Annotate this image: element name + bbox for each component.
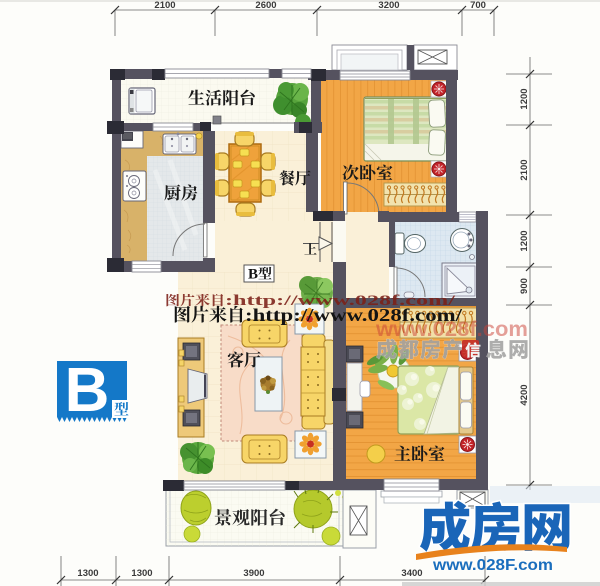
svg-text:1300: 1300 [131, 568, 152, 579]
svg-text:3900: 3900 [243, 568, 264, 579]
svg-text:2600: 2600 [255, 0, 276, 11]
svg-text:2100: 2100 [154, 0, 175, 11]
svg-text:4200: 4200 [519, 384, 530, 405]
svg-text:1300: 1300 [77, 568, 98, 579]
svg-text:1200: 1200 [519, 230, 530, 251]
svg-text:B: B [248, 267, 258, 283]
svg-text:900: 900 [519, 278, 530, 294]
svg-text:3400: 3400 [401, 568, 422, 579]
svg-text:3200: 3200 [378, 0, 399, 11]
svg-text:www.028F.com: www.028F.com [432, 557, 553, 574]
svg-text:www.028f.com: www.028f.com [375, 318, 528, 341]
svg-text:1200: 1200 [519, 88, 530, 109]
svg-text:B: B [65, 356, 110, 425]
svg-text:2100: 2100 [519, 159, 530, 180]
svg-text:700: 700 [470, 0, 486, 11]
